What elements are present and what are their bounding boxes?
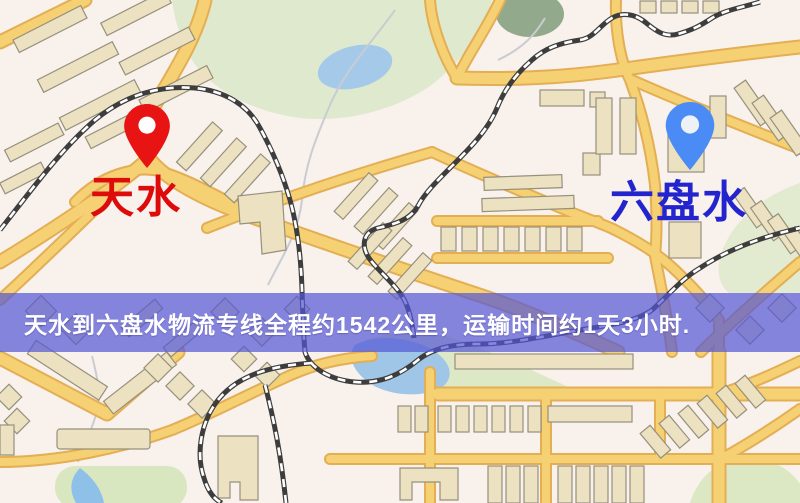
route-info-text: 天水到六盘水物流专线全程约1542公里，运输时间约1天3小时. <box>24 306 690 340</box>
destination-city-label: 六盘水 <box>610 181 748 225</box>
route-info-banner: 天水到六盘水物流专线全程约1542公里，运输时间约1天3小时. <box>0 293 800 352</box>
origin-city-label: 天水 <box>90 176 182 220</box>
map-canvas[interactable] <box>0 0 800 503</box>
origin-pin[interactable] <box>124 104 170 168</box>
map-screenshot: 天水 六盘水 天水到六盘水物流专线全程约1542公里，运输时间约1天3小时. <box>0 0 800 503</box>
red-pin-icon <box>124 104 170 168</box>
blue-pin-icon <box>664 102 716 170</box>
destination-pin[interactable] <box>664 102 716 170</box>
